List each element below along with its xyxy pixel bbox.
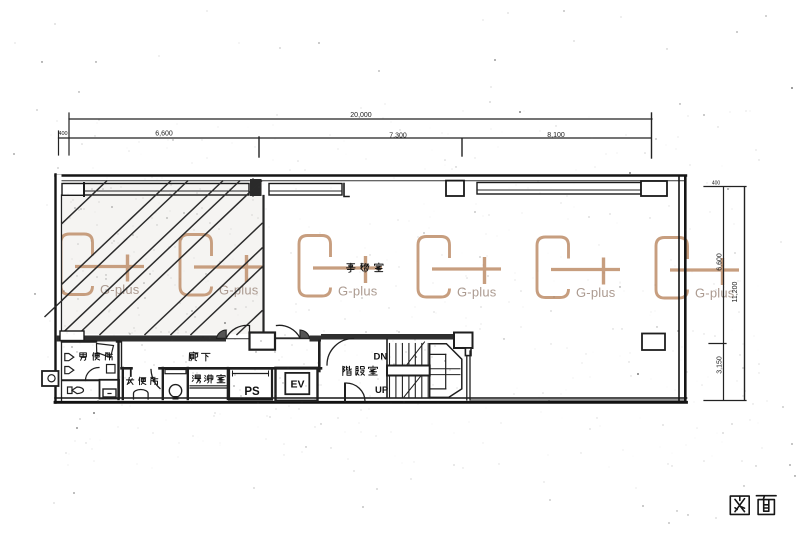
svg-text:400: 400 [58, 131, 67, 137]
svg-text:20,000: 20,000 [350, 112, 372, 119]
svg-text:EV: EV [290, 379, 304, 391]
svg-text:G-plus: G-plus [338, 284, 378, 299]
svg-text:11,200: 11,200 [732, 281, 739, 302]
svg-text:PS: PS [244, 386, 260, 398]
svg-text:G-plus: G-plus [457, 285, 497, 300]
svg-text:8,100: 8,100 [547, 132, 565, 139]
svg-text:G-plus: G-plus [695, 286, 735, 301]
svg-text:DN: DN [374, 352, 388, 363]
svg-text:3,150: 3,150 [717, 356, 724, 374]
svg-text:400: 400 [712, 181, 721, 187]
svg-text:7,300: 7,300 [389, 133, 407, 140]
svg-text:6,600: 6,600 [155, 131, 173, 138]
svg-text:G-plus: G-plus [576, 285, 616, 300]
